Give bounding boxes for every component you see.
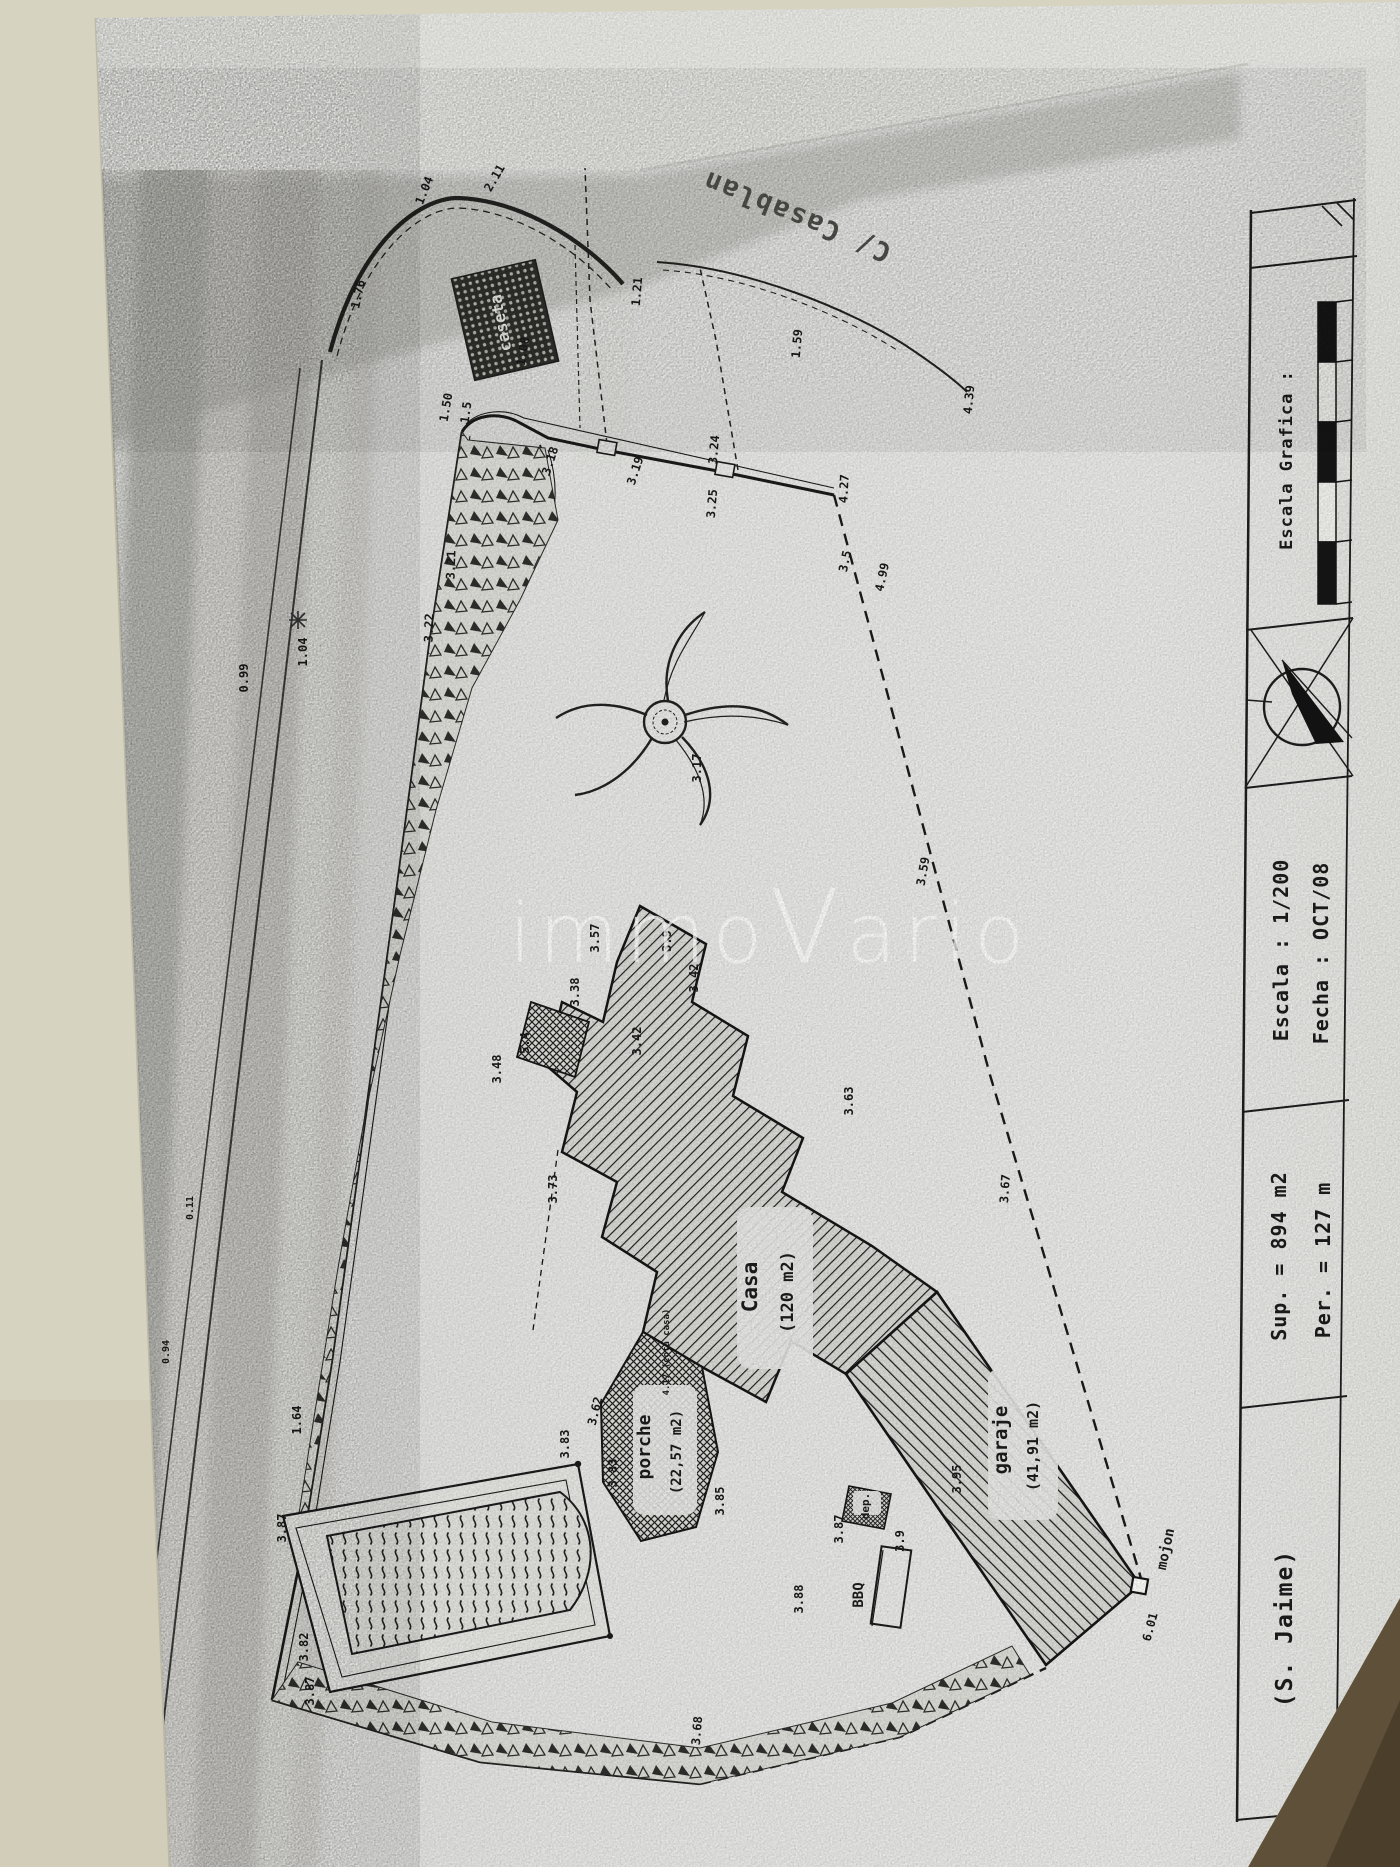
scan-grain-top <box>90 100 1250 420</box>
scanned-site-plan-photo: Casa (120 m2) garaje (41,91 m2) porche (… <box>0 0 1400 1867</box>
site-plan-drawing: Casa (120 m2) garaje (41,91 m2) porche (… <box>0 0 1400 1867</box>
